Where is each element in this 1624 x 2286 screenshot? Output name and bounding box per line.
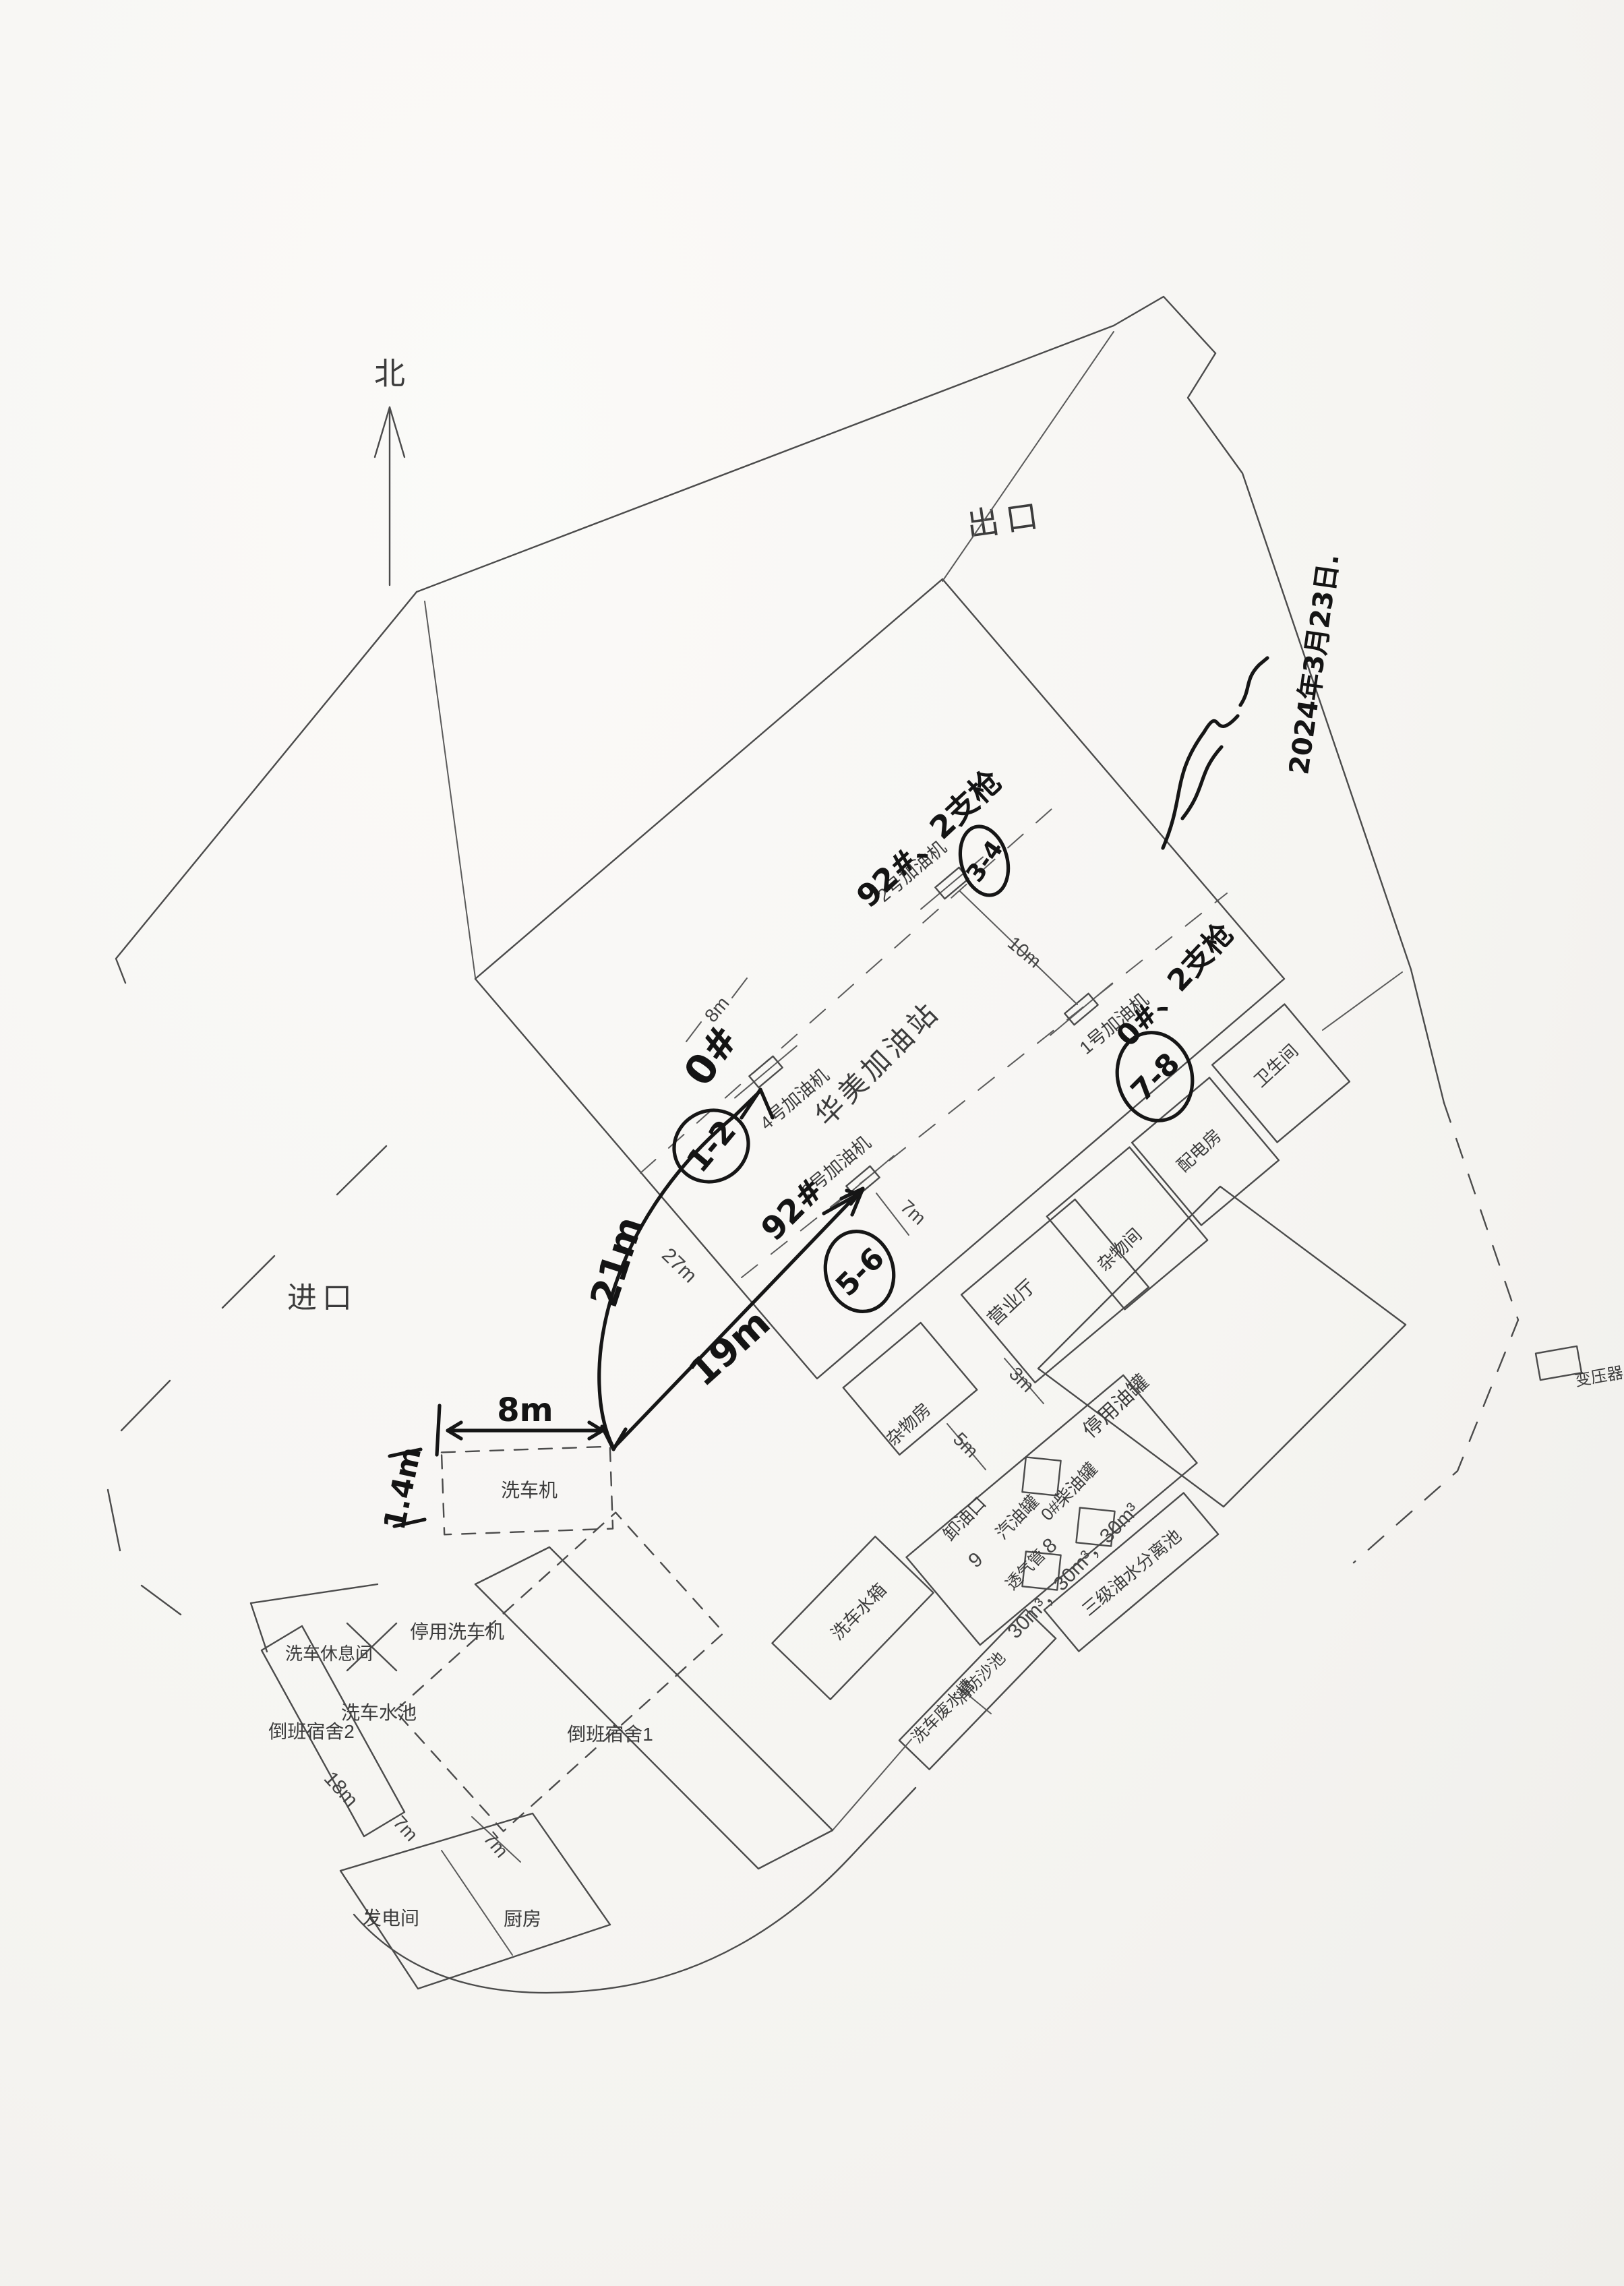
dorm2-label: 倒班宿舍2 <box>268 1721 355 1742</box>
wash-water-tank-label: 洗车水箱 <box>827 1580 891 1644</box>
toilet-label: 卫生间 <box>1250 1040 1302 1091</box>
transformer: 变压器 <box>1536 1346 1624 1390</box>
hand-d1-nozzles: 7-8 <box>1124 1046 1186 1108</box>
handwritten-annotations: 0# 1-2 92#、2支枪 3-4 92# 5-6 0#、2支枪 7-8 21… <box>378 552 1346 1533</box>
generator-room-label: 发电间 <box>363 1908 419 1929</box>
dim-d2-to-d1: 10m <box>1004 932 1046 972</box>
unloading-port-label: 卸油口 <box>939 1493 990 1544</box>
power-room-label: 配电房 <box>1173 1125 1226 1176</box>
wash-rest-room-label: 洗车休息间 <box>285 1644 373 1664</box>
kitchen-label: 厨房 <box>504 1908 541 1929</box>
dorm-cluster: 倒班宿舍2 18m 7m 倒班宿舍1 7m 发电间 厨房 <box>262 1547 833 1989</box>
tank-square-1 <box>1022 1457 1060 1495</box>
disused-tank-area-outline <box>1038 1186 1406 1507</box>
boundary-top-peak <box>1114 297 1215 353</box>
gasoline-tank-label: 汽油罐 <box>992 1491 1043 1543</box>
dispenser-4-tick <box>735 1046 797 1097</box>
entrance-label: 进口 <box>287 1282 357 1315</box>
hand-date: 2024年3月23日. <box>1284 552 1345 777</box>
dim-dorm1-gap: 7m <box>479 1828 512 1861</box>
business-hall-label: 营业厅 <box>984 1275 1040 1329</box>
station-name-label: 华美加油站 <box>809 995 946 1132</box>
canopy-connector-east <box>1323 972 1402 1030</box>
boundary-bottom-curve <box>354 1788 915 1993</box>
dim-d3-to-edge: 7m <box>897 1196 930 1229</box>
dim-canopy-sw-edge: 27m <box>657 1244 701 1287</box>
site-plan-drawing: 北 出口 进口 华美加油站 4号加油机 8m <box>0 0 1624 2286</box>
car-washer-label: 洗车机 <box>501 1480 558 1501</box>
north-compass: 北 <box>374 356 405 585</box>
water-facilities: 三级油水分离池 洗车水箱 洗车废水槽 消防沙池 <box>772 1493 1218 1830</box>
hand-d3-nozzles: 5-6 <box>829 1241 891 1303</box>
boundary-left-solid <box>116 592 417 983</box>
wash-pool-label: 洗车水池 <box>341 1702 417 1723</box>
boundary-left-dashes <box>108 1146 386 1615</box>
car-washer-area: 洗车机 停用洗车机 洗车休息间 洗车水池 <box>285 1447 724 1832</box>
boundary-right-dashed <box>1354 1103 1518 1563</box>
signature-scribble <box>1163 658 1267 848</box>
boundary-top <box>417 326 1114 592</box>
scanned-site-plan-sheet: 北 出口 进口 华美加油站 4号加油机 8m <box>0 0 1624 2286</box>
unloading-port-number: 9 <box>964 1548 987 1572</box>
dim-dorm2-length: 18m <box>320 1768 363 1811</box>
canopy-connector-west <box>425 601 475 977</box>
boundary-washrest-corner <box>251 1584 378 1652</box>
hand-dim-19m: 19m <box>681 1301 779 1395</box>
exit-label: 出口 <box>965 498 1047 544</box>
canopy-connector-north <box>942 332 1114 581</box>
generator-kitchen-divider <box>442 1851 512 1955</box>
north-label: 北 <box>374 356 405 391</box>
hand-dim-8m: 8m <box>497 1391 553 1429</box>
diesel-tank-label: 0#柴油罐 <box>1037 1459 1102 1525</box>
dorm1-to-trough-line <box>833 1739 911 1830</box>
hand-d4-fuel: 0# <box>675 1017 749 1095</box>
sundries-sw-label: 杂物房 <box>882 1399 935 1449</box>
hand-arrow-19m-tail-head <box>602 1426 626 1449</box>
dorm1-label: 倒班宿舍1 <box>567 1724 653 1745</box>
dorm1-outline <box>475 1547 833 1869</box>
dim-canopy-bay: 8m <box>700 992 733 1026</box>
dim-canopy-bay-tick-2 <box>732 978 747 998</box>
disused-washer-label: 停用洗车机 <box>410 1621 504 1642</box>
dim-tanks-to-room: 5m <box>949 1428 982 1462</box>
dim-dorm2-gap: 7m <box>389 1812 422 1846</box>
hand-dim-21m: 21m <box>582 1211 653 1313</box>
hand-d4-nozzles: 1-2 <box>680 1113 744 1179</box>
